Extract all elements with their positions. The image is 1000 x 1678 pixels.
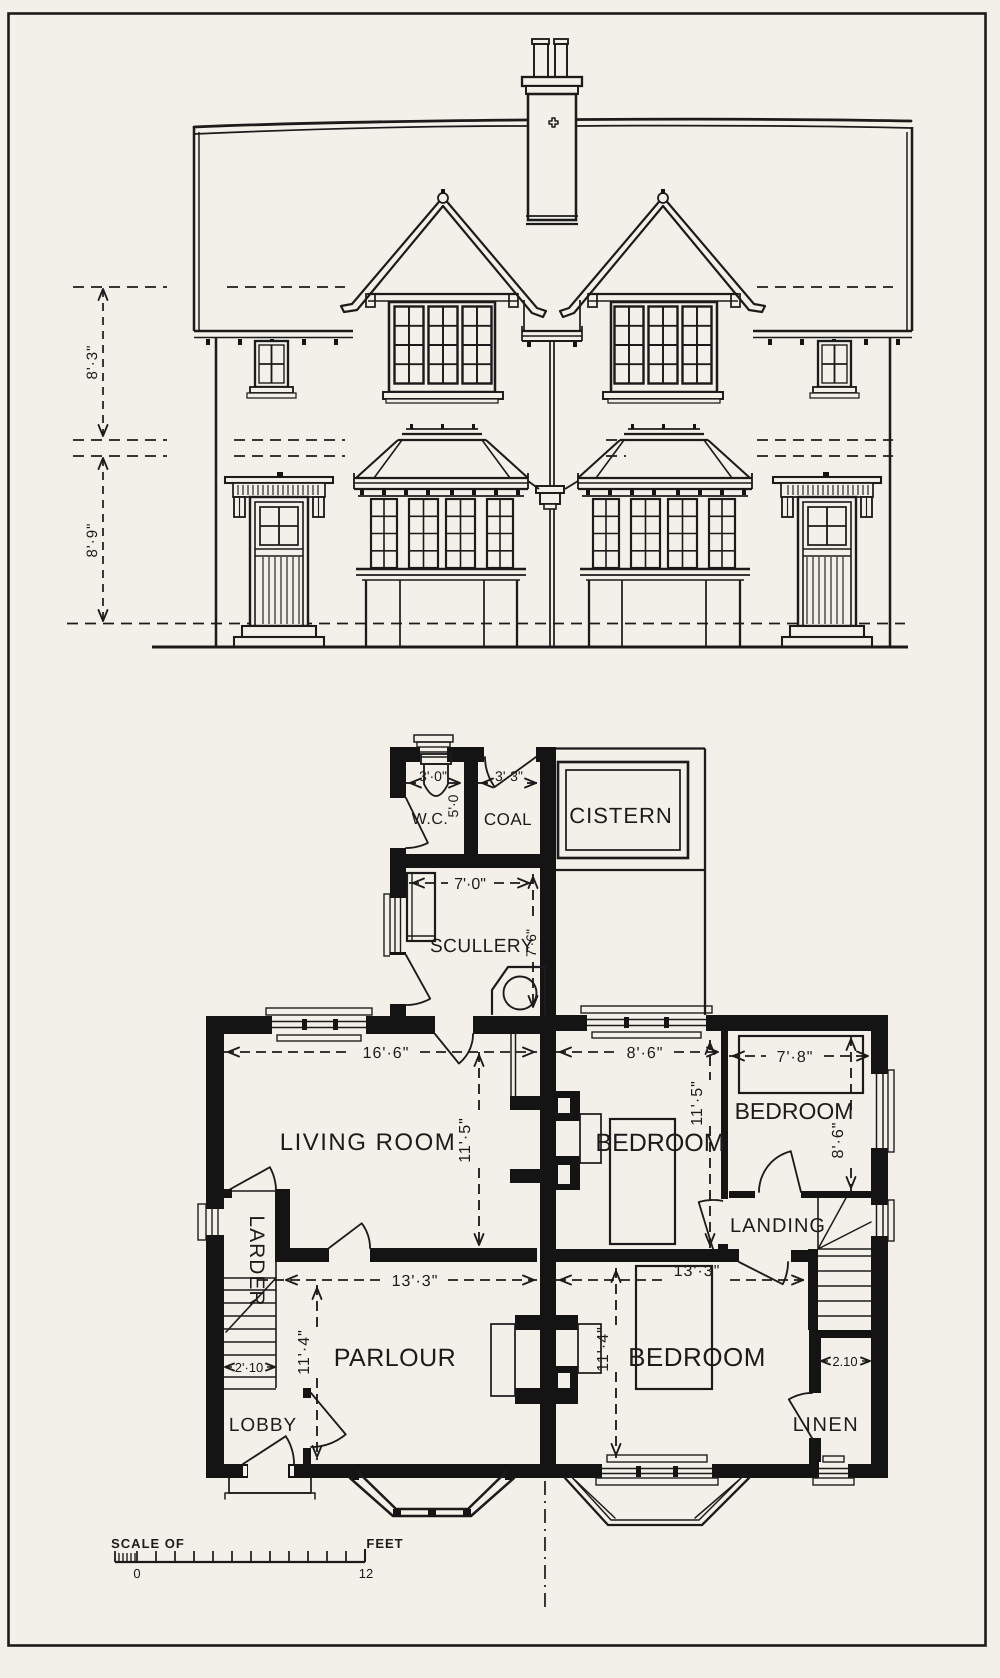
svg-text:FEET: FEET: [366, 1536, 403, 1551]
svg-text:W.C.: W.C.: [412, 811, 449, 828]
svg-text:8'·6": 8'·6": [627, 1045, 664, 1062]
svg-text:COAL: COAL: [484, 810, 532, 829]
svg-text:SCULLERY: SCULLERY: [430, 936, 534, 957]
svg-text:CISTERN: CISTERN: [569, 803, 673, 828]
svg-text:LARDER: LARDER: [245, 1215, 268, 1306]
svg-text:3'·3": 3'·3": [495, 768, 523, 784]
svg-text:11'·5": 11'·5": [689, 1080, 706, 1126]
svg-text:2'·10: 2'·10: [235, 1360, 264, 1375]
svg-text:13'·3": 13'·3": [674, 1263, 721, 1280]
svg-text:16'·6": 16'·6": [363, 1045, 410, 1062]
svg-text:LIVING ROOM: LIVING ROOM: [280, 1129, 457, 1156]
svg-text:8'·3": 8'·3": [84, 345, 101, 380]
svg-text:11'·4": 11'·4": [595, 1326, 612, 1372]
svg-text:7'·0": 7'·0": [454, 876, 486, 893]
svg-text:BEDROOM: BEDROOM: [595, 1129, 724, 1157]
svg-text:LANDING: LANDING: [730, 1215, 826, 1237]
svg-text:BEDROOM: BEDROOM: [735, 1098, 854, 1124]
svg-text:12: 12: [359, 1566, 373, 1581]
svg-text:LINEN: LINEN: [793, 1414, 859, 1436]
svg-text:8'·9": 8'·9": [84, 523, 101, 558]
svg-text:8'·6": 8'·6": [830, 1122, 847, 1159]
svg-text:11'·5": 11'·5": [457, 1117, 474, 1163]
svg-text:11'·4": 11'·4": [296, 1329, 313, 1375]
svg-text:BEDROOM: BEDROOM: [628, 1342, 766, 1372]
svg-text:SCALE OF: SCALE OF: [111, 1536, 185, 1551]
svg-text:LOBBY: LOBBY: [229, 1415, 297, 1436]
svg-text:3'·0": 3'·0": [419, 768, 447, 784]
svg-text:7'·8": 7'·8": [777, 1049, 814, 1066]
svg-text:2.10: 2.10: [832, 1354, 857, 1369]
svg-text:PARLOUR: PARLOUR: [334, 1344, 457, 1372]
svg-text:13'·3": 13'·3": [392, 1273, 439, 1290]
svg-text:0: 0: [133, 1566, 140, 1581]
